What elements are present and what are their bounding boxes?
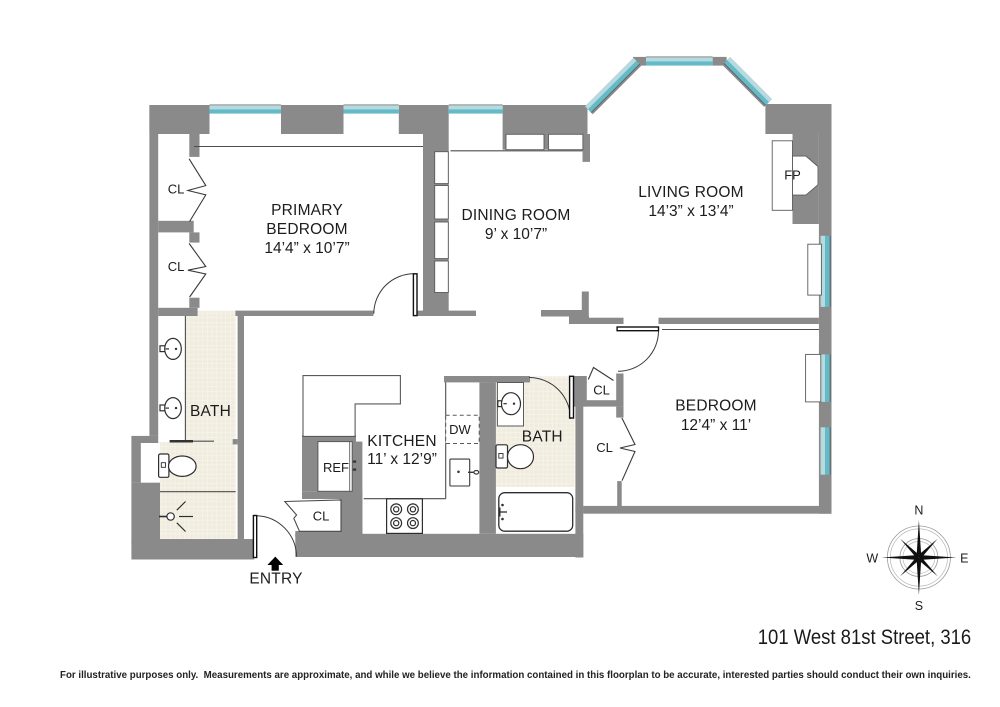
- svg-text:BATH: BATH: [522, 429, 563, 446]
- svg-text:BEDROOM: BEDROOM: [675, 398, 757, 415]
- svg-text:N: N: [914, 503, 923, 517]
- svg-text:FP: FP: [784, 168, 801, 183]
- svg-text:LIVING ROOM: LIVING ROOM: [638, 184, 744, 201]
- svg-text:14’4” x 10’7”: 14’4” x 10’7”: [264, 240, 349, 257]
- svg-text:14’3” x 13’4”: 14’3” x 13’4”: [648, 203, 733, 220]
- svg-text:BATH: BATH: [190, 403, 231, 420]
- svg-text:KITCHEN: KITCHEN: [367, 433, 436, 450]
- svg-text:ENTRY: ENTRY: [249, 571, 302, 588]
- svg-text:DINING ROOM: DINING ROOM: [462, 207, 571, 224]
- svg-text:S: S: [915, 599, 923, 613]
- svg-text:PRIMARY: PRIMARY: [271, 202, 343, 219]
- svg-text:CL: CL: [313, 509, 330, 524]
- svg-text:REF: REF: [323, 460, 349, 475]
- svg-text:12’4” x 11’: 12’4” x 11’: [681, 417, 751, 434]
- svg-text:CL: CL: [593, 383, 610, 398]
- svg-text:11’ x 12’9”: 11’ x 12’9”: [367, 451, 437, 468]
- svg-text:CL: CL: [168, 182, 185, 197]
- svg-text:DW: DW: [449, 422, 471, 437]
- svg-text:W: W: [866, 551, 878, 565]
- svg-text:BEDROOM: BEDROOM: [266, 221, 348, 238]
- svg-text:CL: CL: [596, 440, 613, 455]
- svg-text:9’ x 10’7”: 9’ x 10’7”: [485, 226, 547, 243]
- svg-text:CL: CL: [168, 259, 185, 274]
- svg-text:E: E: [960, 551, 968, 565]
